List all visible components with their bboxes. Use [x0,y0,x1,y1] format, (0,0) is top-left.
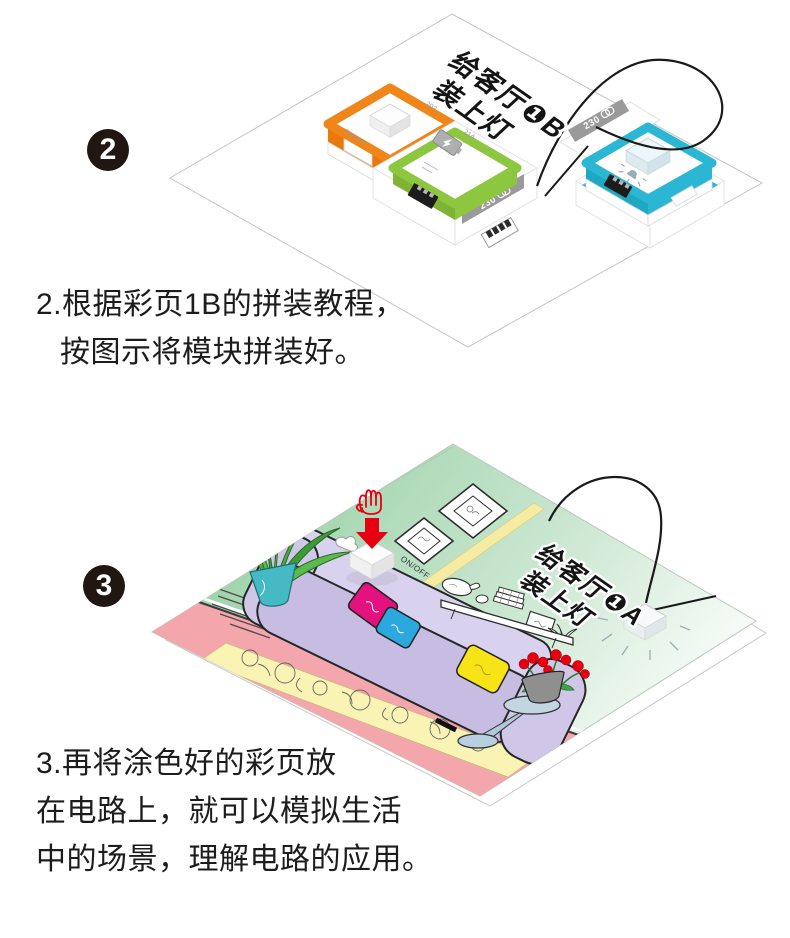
caption-line: 2.根据彩页1B的拼装教程， [36,281,405,329]
manual-page: 2 202 ON/OFF 230 [0,0,790,938]
shelf-ornament [476,595,488,603]
flower-pot [522,671,564,703]
caption-line: 3.再将涂色好的彩页放 [36,740,433,788]
caption-line: 在电路上，就可以模拟生活 [36,788,433,836]
step-3-caption: 3.再将涂色好的彩页放 在电路上，就可以模拟生活 中的场景，理解电路的应用。 [36,740,433,884]
caption-line: 中的场景，理解电路的应用。 [36,836,433,884]
step-2-caption: 2.根据彩页1B的拼装教程， 按图示将模块拼装好。 [36,281,405,377]
caption-line: 按图示将模块拼装好。 [36,329,405,377]
